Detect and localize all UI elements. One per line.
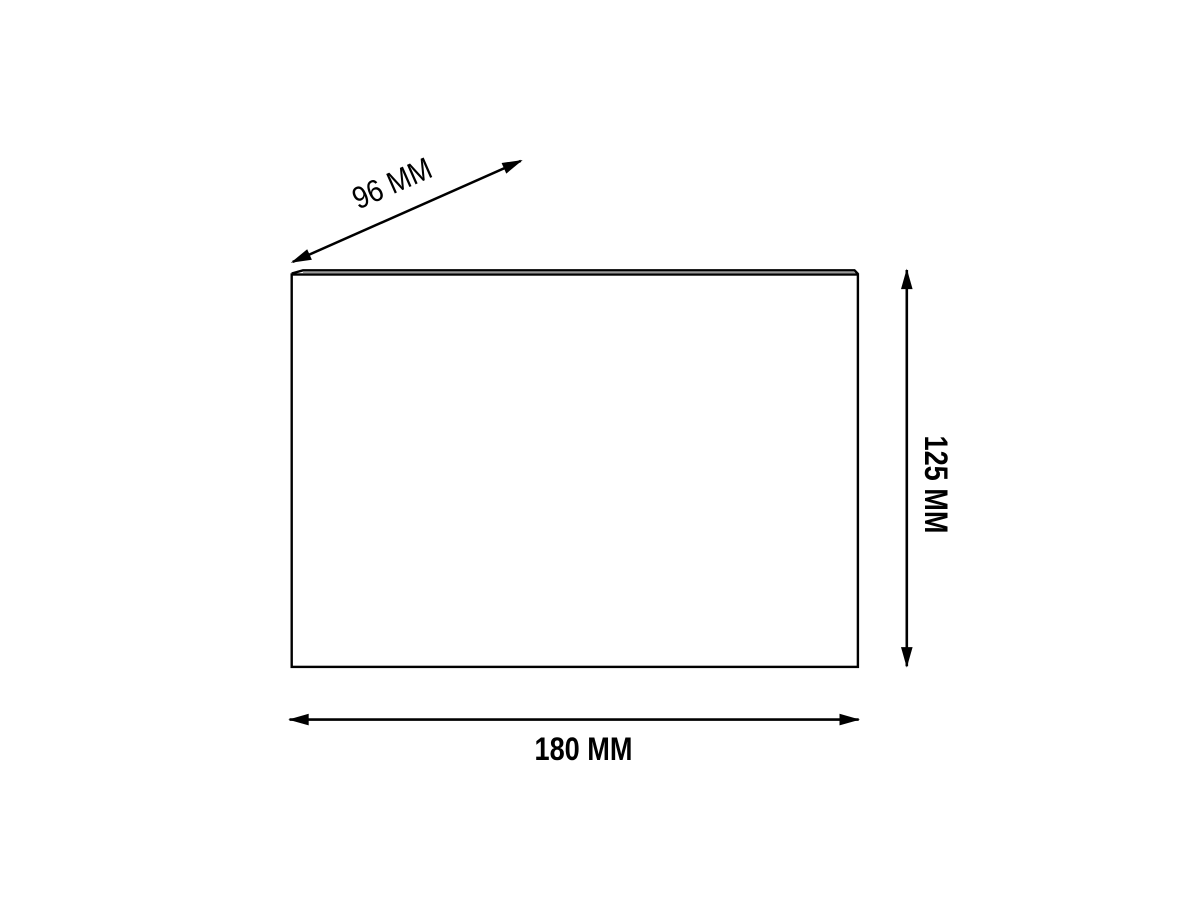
svg-text:180 MM: 180 MM xyxy=(535,732,633,768)
svg-text:125 MM: 125 MM xyxy=(917,436,953,534)
